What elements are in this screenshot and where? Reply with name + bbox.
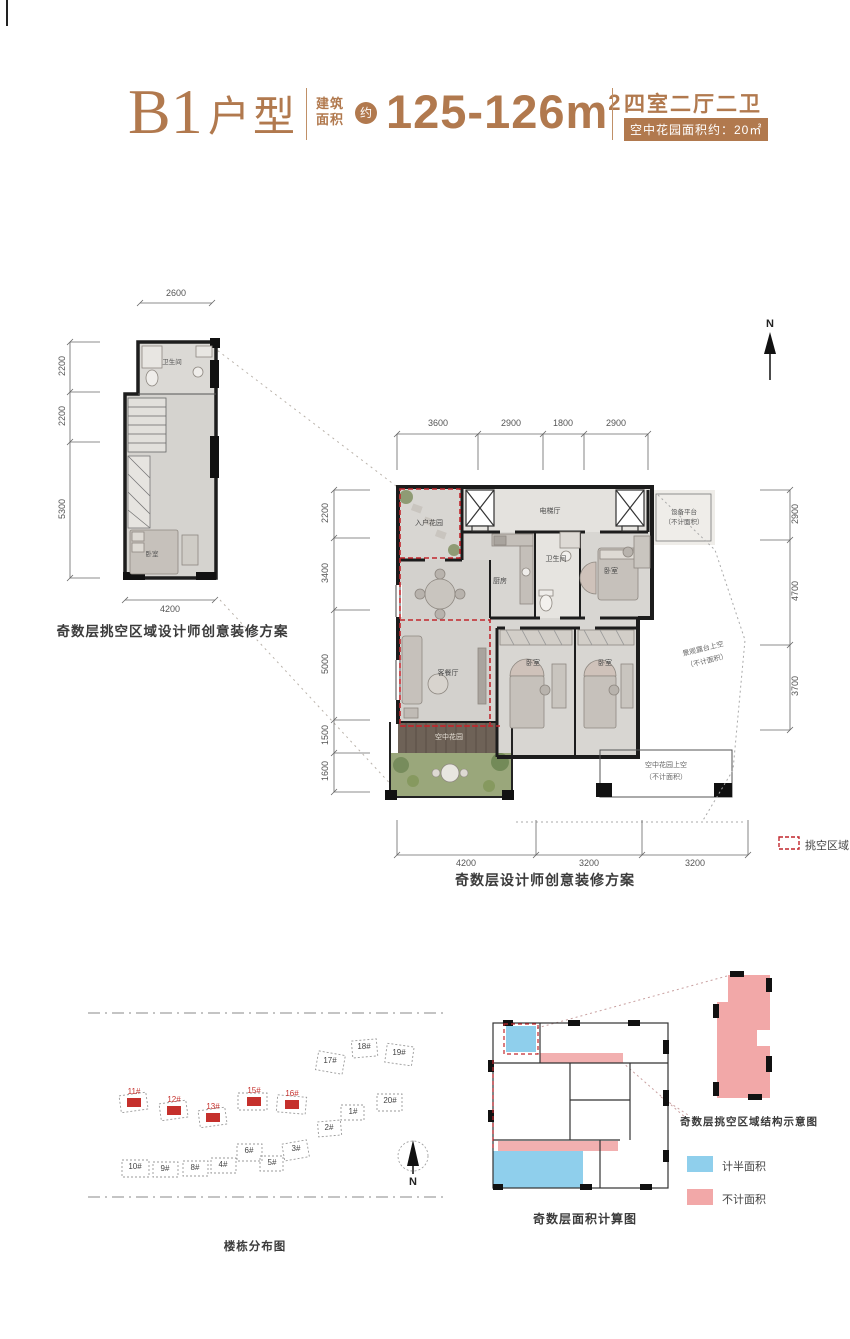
uncounted-area-legend-swatch xyxy=(687,1189,713,1205)
room-label-bedroom: 卧室 xyxy=(132,548,172,558)
building-label: 13# xyxy=(198,1102,228,1111)
building-label: 3# xyxy=(281,1144,311,1153)
garden-above-note-line2: （不计面积） xyxy=(631,772,701,782)
dim-label: 1800 xyxy=(542,418,584,428)
half-area-legend-label: 计半面积 xyxy=(722,1158,766,1174)
dim-label: 5000 xyxy=(320,643,330,685)
elevator-icon xyxy=(466,490,494,531)
building-label: 18# xyxy=(349,1042,379,1051)
small-plan-caption: 奇数层挑空区域设计师创意装修方案 xyxy=(55,620,290,640)
building-label: 8# xyxy=(180,1163,210,1172)
plan-graphics xyxy=(0,0,850,1339)
stairs-icon xyxy=(128,398,166,452)
floor-plan-page: B1 户型 建筑 面积 约 125-126m2 四室二厅二卫 空中花园面积约：2… xyxy=(0,0,850,1339)
north-label: N xyxy=(405,1176,421,1188)
building-label: 9# xyxy=(150,1164,180,1173)
closet-icon xyxy=(128,456,150,528)
building-label: 19# xyxy=(384,1048,414,1057)
dim-label: 5300 xyxy=(57,489,67,529)
room-label-elevator-hall: 电梯厅 xyxy=(528,506,572,516)
dim-label: 4200 xyxy=(445,858,487,868)
structure-caption: 奇数层面积计算图 xyxy=(510,1210,660,1227)
dim-label: 2200 xyxy=(57,396,67,436)
building-label: 15# xyxy=(239,1086,269,1095)
void-shape xyxy=(717,975,770,1098)
building-label: 4# xyxy=(208,1160,238,1169)
dim-label: 3200 xyxy=(568,858,610,868)
building-label: 17# xyxy=(315,1056,345,1065)
garden-above-note-line1: 空中花园上空 xyxy=(631,760,701,770)
north-arrow-icon xyxy=(764,332,776,380)
void-legend-swatch xyxy=(779,837,799,849)
leader-lines xyxy=(213,347,400,790)
dim-label: 4700 xyxy=(790,570,800,612)
north-label: N xyxy=(762,318,778,330)
dim-label: 3700 xyxy=(790,665,800,707)
room-label-bedroom-b: 卧室 xyxy=(518,658,548,668)
building-label: 10# xyxy=(120,1162,150,1171)
room-label-bath: 卫生间 xyxy=(538,554,574,564)
half-area-legend-swatch xyxy=(687,1156,713,1172)
building-label: 12# xyxy=(159,1095,189,1104)
dim-label: 2900 xyxy=(490,418,532,428)
room-label-bedroom-c: 卧室 xyxy=(590,658,620,668)
building-label: 2# xyxy=(314,1123,344,1132)
room-label-sky-garden: 空中花园 xyxy=(414,732,484,742)
building-label: 6# xyxy=(234,1146,264,1155)
building-label: 16# xyxy=(277,1089,307,1098)
main-plan-caption: 奇数层设计师创意装修方案 xyxy=(425,870,665,890)
room-label-entry-garden: 入户花园 xyxy=(404,518,454,528)
dim-label: 3600 xyxy=(417,418,459,428)
dim-label: 2600 xyxy=(156,288,196,298)
building-label: 20# xyxy=(375,1096,405,1105)
building-label: 1# xyxy=(338,1107,368,1116)
structure-annotation: 奇数层挑空区域结构示意图 xyxy=(680,1114,850,1129)
room-label-living: 客餐厅 xyxy=(428,668,468,678)
dim-label: 3400 xyxy=(320,552,330,594)
site-plan-caption: 楼栋分布图 xyxy=(185,1238,325,1254)
room-label-bath: 卫生间 xyxy=(152,356,192,366)
building-label: 11# xyxy=(119,1087,149,1096)
dim-label: 2200 xyxy=(57,346,67,386)
dim-label: 2900 xyxy=(790,493,800,535)
void-legend-label: 挑空区域 xyxy=(805,837,849,853)
elevator-icon xyxy=(616,490,644,531)
north-arrow-icon xyxy=(398,1140,428,1174)
dim-label: 2900 xyxy=(595,418,637,428)
uncounted-area-legend-label: 不计面积 xyxy=(722,1191,766,1207)
building-label: 5# xyxy=(257,1158,287,1167)
room-label-bedroom-a: 卧室 xyxy=(596,566,626,576)
dim-label: 4200 xyxy=(150,604,190,614)
dim-label: 3200 xyxy=(674,858,716,868)
room-label-kitchen: 厨房 xyxy=(482,576,518,586)
room-label-equipment: 设备平台 xyxy=(658,506,710,516)
dim-label: 1600 xyxy=(320,750,330,792)
dim-label: 2200 xyxy=(320,492,330,534)
room-label-equipment-note: （不计面积） xyxy=(658,516,710,526)
